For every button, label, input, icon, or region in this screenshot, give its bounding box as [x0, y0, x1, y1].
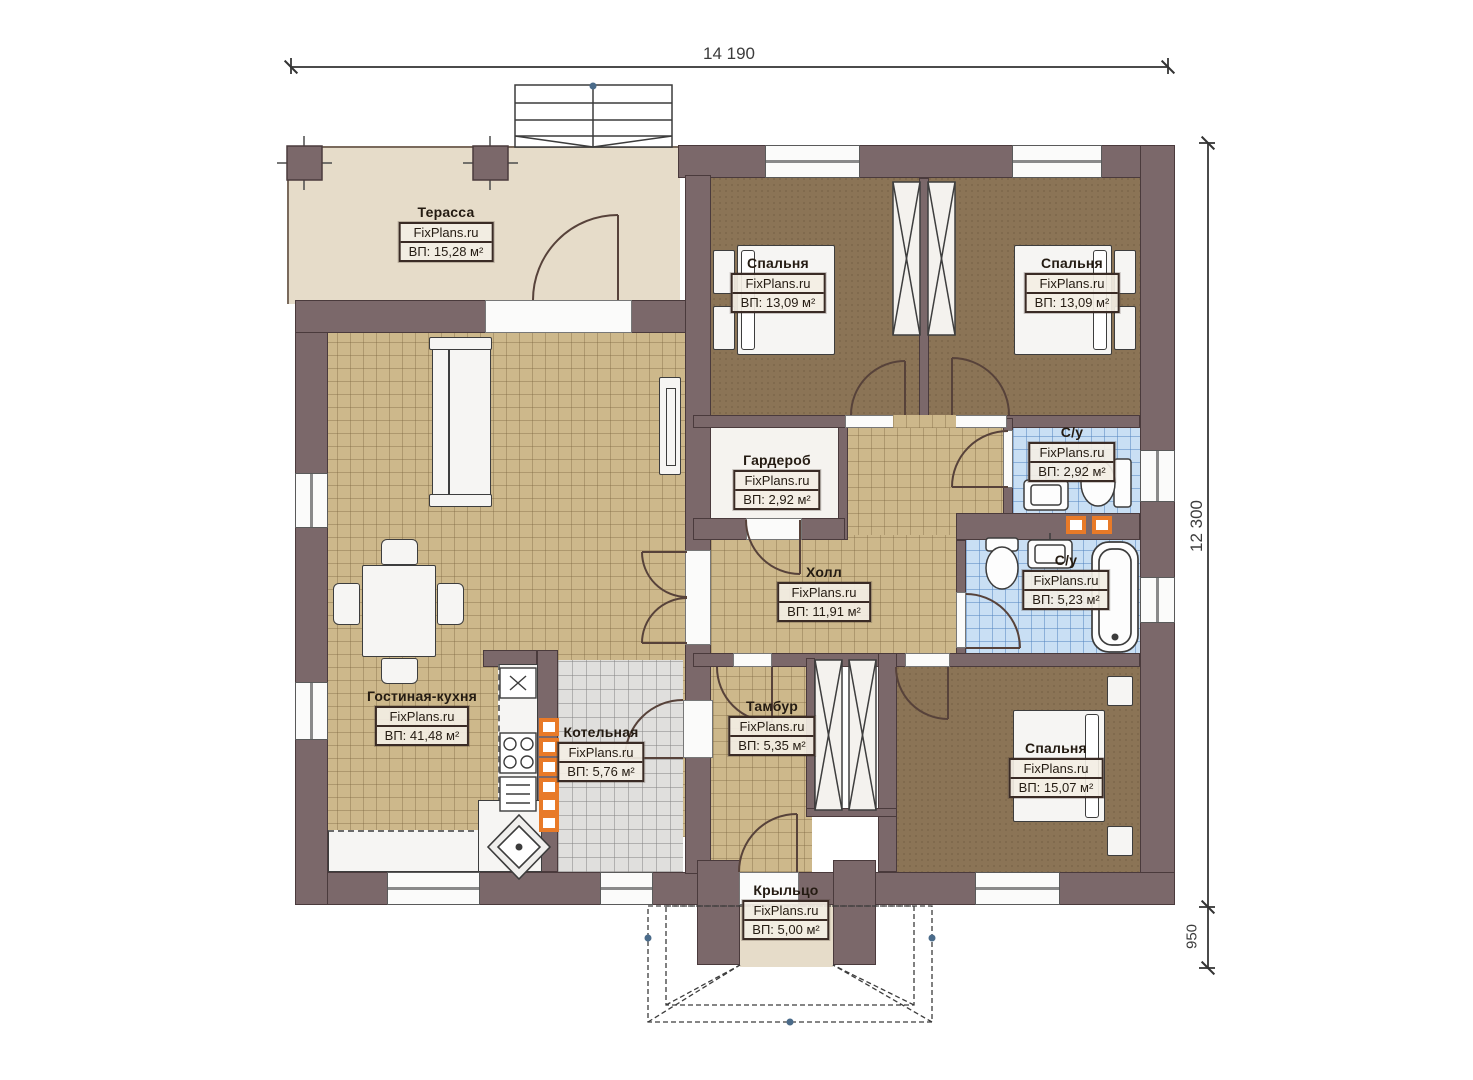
heating-unit [539, 814, 559, 832]
room-area: ВП: 15,28 м² [401, 243, 492, 260]
room-area: ВП: 5,35 м² [730, 737, 813, 754]
room-name: Котельная [557, 724, 644, 740]
room-area: ВП: 13,09 м² [733, 294, 824, 311]
room-label-bath2: С/у FixPlans.ruВП: 5,23 м² [1022, 552, 1109, 610]
door-opening [733, 653, 772, 667]
room-name: Спальня [1009, 740, 1104, 756]
wall-between-baths [956, 513, 1140, 540]
heating-unit [539, 718, 559, 736]
wall-left [295, 300, 328, 905]
heating-unit [1066, 516, 1086, 534]
room-label-boiler: Котельная FixPlans.ruВП: 5,76 м² [557, 724, 644, 782]
room-label-living: Гостиная-кухня FixPlans.ruВП: 41,48 м² [367, 688, 477, 746]
chair [381, 539, 418, 565]
chair [437, 583, 464, 625]
heating-unit [539, 758, 559, 776]
room-area: ВП: 15,07 м² [1011, 779, 1102, 796]
room-name: Холл [777, 564, 871, 580]
kitchen-counter-corner [478, 800, 542, 872]
room-name: Терасса [399, 204, 494, 220]
room-name: Крыльцо [742, 882, 829, 898]
kitchen-counter [328, 830, 484, 872]
room-name: С/у [1028, 424, 1115, 440]
room-area: ВП: 5,76 м² [559, 763, 642, 780]
room-area: ВП: 2,92 м² [1030, 463, 1113, 480]
watermark: FixPlans.ru [1030, 444, 1113, 463]
watermark: FixPlans.ru [1011, 760, 1102, 779]
room-label-bedroom1: Спальня FixPlans.ruВП: 13,09 м² [731, 255, 826, 313]
window [600, 872, 653, 905]
room-area: ВП: 5,00 м² [744, 921, 827, 938]
nightstand [1107, 826, 1133, 856]
chair [381, 658, 418, 684]
dining-table [362, 565, 436, 657]
door-opening [746, 518, 802, 540]
wall-closet-right [878, 653, 897, 872]
watermark: FixPlans.ru [744, 902, 827, 921]
room-label-tambour: Тамбур FixPlans.ruВП: 5,35 м² [728, 698, 815, 756]
wall-closet-bottom [806, 808, 897, 817]
room-name: Гостиная-кухня [367, 688, 477, 704]
window [1012, 145, 1102, 178]
sofa-seat [449, 348, 491, 496]
room-name: Спальня [731, 255, 826, 271]
watermark: FixPlans.ru [730, 718, 813, 737]
heating-unit [539, 796, 559, 814]
dimension-line-right [1207, 142, 1209, 968]
room-label-bath1: С/у FixPlans.ruВП: 2,92 м² [1028, 424, 1115, 482]
dimension-width-label: 14 190 [703, 44, 755, 64]
room-name: С/у [1022, 552, 1109, 568]
window [295, 682, 328, 740]
dimension-height-label: 12 300 [1187, 491, 1207, 561]
window [387, 872, 480, 905]
window [295, 473, 328, 528]
watermark: FixPlans.ru [1027, 275, 1118, 294]
room-area: ВП: 41,48 м² [377, 727, 468, 744]
room-name: Спальня [1025, 255, 1120, 271]
room-label-terrace: Терасса FixPlans.ruВП: 15,28 м² [399, 204, 494, 262]
room-label-bedroom3: Спальня FixPlans.ruВП: 15,07 м² [1009, 740, 1104, 798]
double-door-opening [685, 550, 711, 645]
room-area: ВП: 13,09 м² [1027, 294, 1118, 311]
terrace-door-opening [485, 300, 632, 333]
room-label-porch: Крыльцо FixPlans.ruВП: 5,00 м² [742, 882, 829, 940]
heating-unit [539, 738, 559, 756]
wall-right [1140, 145, 1175, 905]
room-label-wardrobe: Гардероб FixPlans.ruВП: 2,92 м² [733, 452, 820, 510]
door-opening [905, 653, 950, 667]
wall-bedroom-divider [919, 178, 929, 418]
door-opening [683, 700, 713, 758]
wall-porch-left [697, 860, 740, 965]
room-area: ВП: 11,91 м² [779, 603, 869, 620]
watermark: FixPlans.ru [377, 708, 468, 727]
room-floor-tambour [700, 658, 812, 872]
floor-plan: Терасса FixPlans.ruВП: 15,28 м² Спальня … [0, 0, 1473, 1080]
window [1140, 450, 1175, 502]
watermark: FixPlans.ru [779, 584, 869, 603]
sofa-armrest [429, 337, 492, 350]
room-area: ВП: 2,92 м² [735, 491, 818, 508]
heating-unit [539, 778, 559, 796]
window [765, 145, 860, 178]
wall-porch-right [833, 860, 876, 965]
heating-unit [1092, 516, 1112, 534]
watermark: FixPlans.ru [733, 275, 824, 294]
corridor-gap [893, 415, 956, 428]
room-name: Гардероб [733, 452, 820, 468]
door-opening [949, 415, 1007, 428]
tv-screen [666, 388, 676, 466]
dimension-line-top [290, 66, 1168, 68]
chair [333, 583, 360, 625]
sofa-back [432, 344, 449, 499]
watermark: FixPlans.ru [401, 224, 492, 243]
terrace-stairs [515, 83, 672, 148]
room-name: Тамбур [728, 698, 815, 714]
watermark: FixPlans.ru [735, 472, 818, 491]
room-label-bedroom2: Спальня FixPlans.ruВП: 13,09 м² [1025, 255, 1120, 313]
nightstand [1107, 676, 1133, 706]
dimension-porch-label: 950 [1184, 917, 1201, 957]
door-opening [956, 592, 966, 648]
watermark: FixPlans.ru [559, 744, 642, 763]
window [975, 872, 1060, 905]
room-label-hall: Холл FixPlans.ruВП: 11,91 м² [777, 564, 871, 622]
room-area: ВП: 5,23 м² [1024, 591, 1107, 608]
tv-unit [659, 377, 681, 475]
sofa-armrest [429, 494, 492, 507]
window [1140, 577, 1175, 623]
watermark: FixPlans.ru [1024, 572, 1107, 591]
door-opening [1003, 430, 1013, 488]
